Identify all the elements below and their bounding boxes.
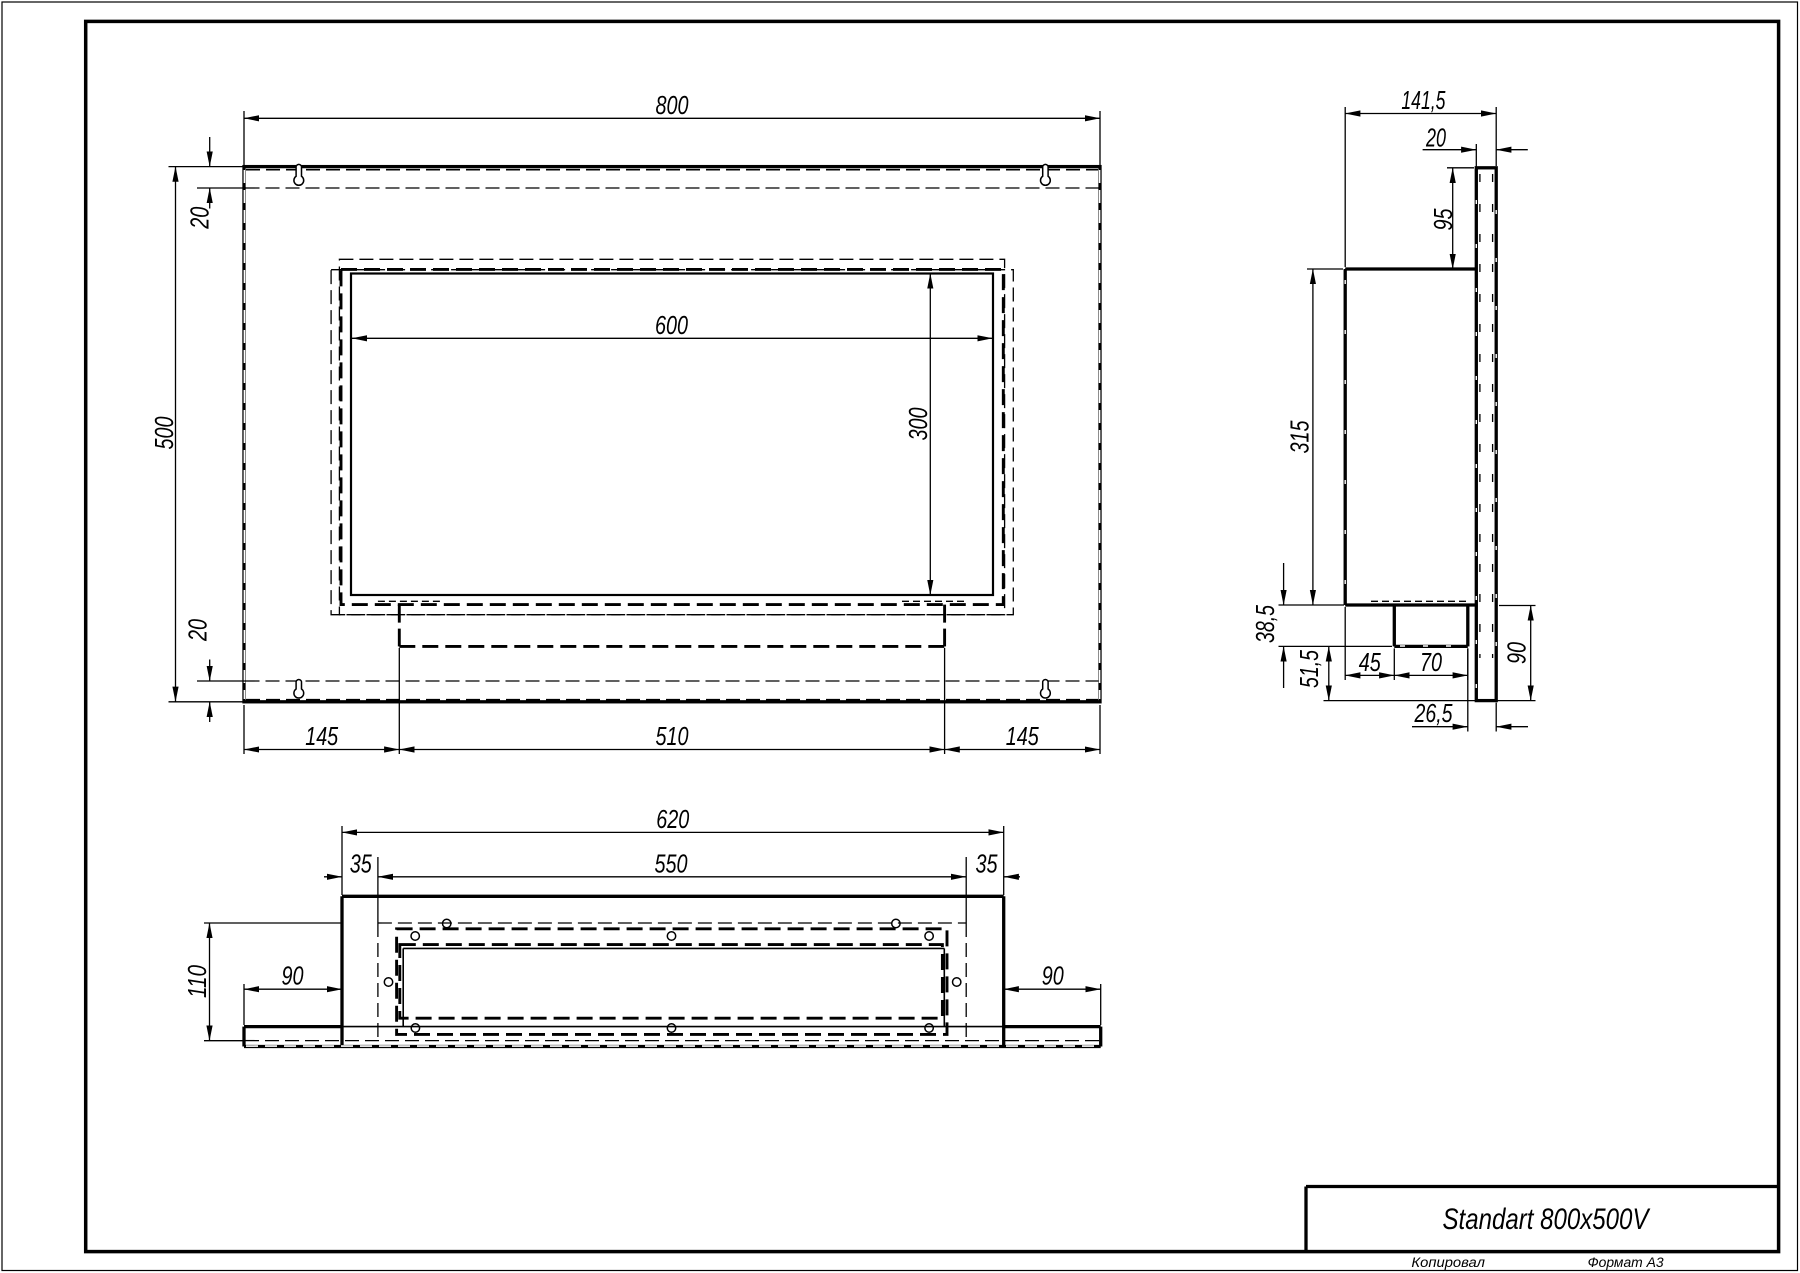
svg-text:620: 620 <box>656 804 689 834</box>
svg-text:145: 145 <box>1006 721 1039 751</box>
svg-text:800: 800 <box>656 90 689 120</box>
svg-text:90: 90 <box>1501 642 1531 664</box>
svg-text:45: 45 <box>1359 647 1381 677</box>
svg-text:510: 510 <box>656 721 689 751</box>
svg-text:550: 550 <box>655 848 688 878</box>
svg-text:70: 70 <box>1420 647 1442 677</box>
svg-text:110: 110 <box>182 965 212 998</box>
svg-text:20: 20 <box>1425 123 1446 153</box>
svg-text:300: 300 <box>903 407 933 440</box>
svg-text:95: 95 <box>1428 208 1458 230</box>
svg-text:35: 35 <box>976 848 998 878</box>
svg-text:51,5: 51,5 <box>1294 650 1324 688</box>
svg-text:141,5: 141,5 <box>1401 85 1445 115</box>
svg-text:35: 35 <box>350 848 372 878</box>
svg-text:26,5: 26,5 <box>1414 698 1453 728</box>
svg-text:20: 20 <box>182 619 212 642</box>
svg-text:20: 20 <box>185 206 215 229</box>
svg-text:500: 500 <box>149 416 179 449</box>
svg-text:600: 600 <box>655 310 688 340</box>
svg-text:Копировал: Копировал <box>1411 1255 1485 1270</box>
svg-text:90: 90 <box>1042 961 1064 991</box>
svg-text:90: 90 <box>282 961 304 991</box>
svg-text:145: 145 <box>305 721 338 751</box>
svg-text:Standart 800x500V: Standart 800x500V <box>1443 1203 1651 1236</box>
svg-text:38,5: 38,5 <box>1250 605 1280 643</box>
svg-text:Формат А3: Формат А3 <box>1588 1255 1664 1270</box>
svg-text:315: 315 <box>1284 420 1314 453</box>
